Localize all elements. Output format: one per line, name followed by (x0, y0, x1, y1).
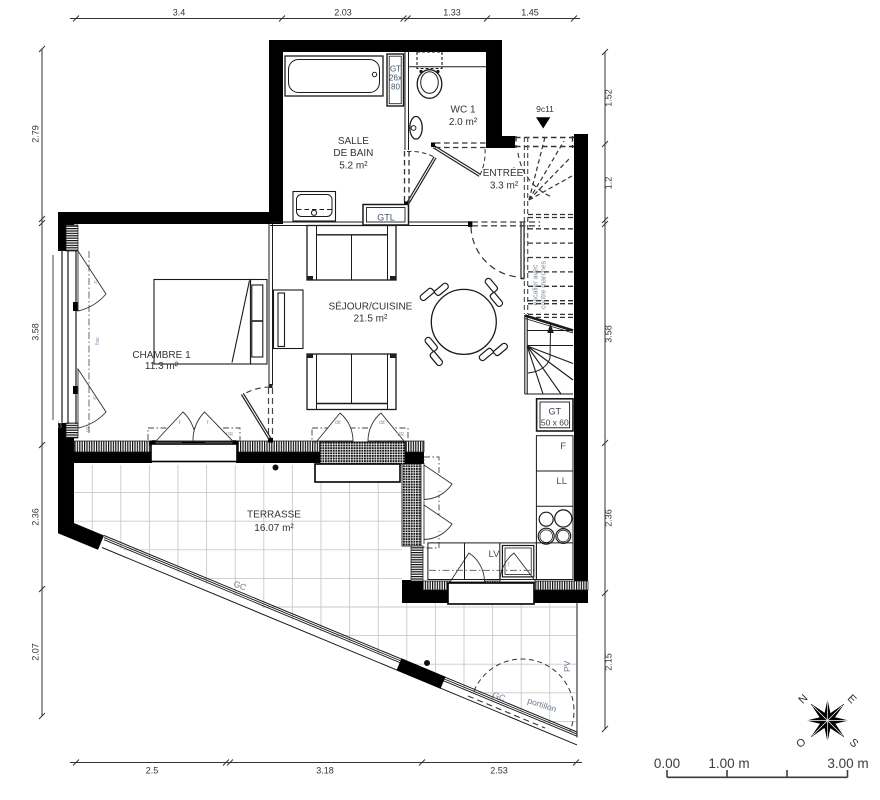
svg-text:2.07: 2.07 (31, 643, 41, 661)
svg-text:3.3 m²: 3.3 m² (490, 181, 519, 192)
svg-text:26x: 26x (389, 74, 402, 83)
svg-text:50 x 60: 50 x 60 (541, 418, 569, 428)
svg-text:3.00 m: 3.00 m (827, 756, 868, 771)
svg-text:ENTRÉE: ENTRÉE (483, 166, 524, 179)
svg-text:5.2 m²: 5.2 m² (339, 161, 368, 172)
svg-text:2.36: 2.36 (31, 508, 41, 526)
svg-text:VR: VR (397, 432, 404, 438)
svg-text:VR: VR (226, 432, 233, 438)
svg-text:dd: dd (379, 420, 385, 426)
svg-text:TERRASSE: TERRASSE (247, 510, 301, 521)
svg-text:WC 1: WC 1 (451, 105, 476, 116)
svg-text:1.45: 1.45 (521, 8, 539, 18)
svg-text:1.52: 1.52 (604, 89, 614, 107)
svg-text:LL: LL (556, 476, 567, 487)
svg-text:1.33: 1.33 (443, 8, 461, 18)
svg-text:2.0 m²: 2.0 m² (449, 117, 478, 128)
svg-text:3.4: 3.4 (173, 8, 186, 18)
svg-text:21.5 m²: 21.5 m² (353, 314, 388, 325)
svg-text:GC: GC (58, 420, 64, 428)
svg-text:SÉJOUR/CUISINE: SÉJOUR/CUISINE (328, 299, 412, 312)
svg-text:2.5: 2.5 (146, 766, 159, 776)
svg-text:dd: dd (335, 420, 341, 426)
svg-text:0.00: 0.00 (654, 756, 680, 771)
svg-text:2.15: 2.15 (604, 653, 614, 671)
svg-text:CHAMBRE 1: CHAMBRE 1 (132, 350, 191, 361)
svg-text:F: F (560, 441, 566, 452)
svg-text:2.53: 2.53 (490, 766, 508, 776)
svg-text:1.00 m: 1.00 m (708, 756, 749, 771)
svg-text:2.36: 2.36 (604, 509, 614, 527)
svg-text:2.03: 2.03 (334, 8, 352, 18)
svg-text:DE BAIN: DE BAIN (333, 148, 373, 159)
svg-text:LV: LV (489, 549, 501, 560)
svg-text:11.3 m²: 11.3 m² (145, 361, 179, 372)
svg-text:GT: GT (549, 407, 562, 417)
svg-text:VR: VR (86, 425, 92, 432)
svg-text:PV: PV (562, 660, 572, 672)
svg-text:80: 80 (391, 83, 400, 92)
svg-text:3.18: 3.18 (316, 766, 334, 776)
svg-text:GTL: GTL (377, 213, 395, 223)
svg-text:contre marches: contre marches (541, 260, 548, 309)
svg-text:escalier avec: escalier avec (533, 264, 540, 305)
svg-text:2.79: 2.79 (31, 125, 41, 143)
svg-text:1.2: 1.2 (604, 177, 614, 190)
svg-text:9c11: 9c11 (536, 104, 554, 114)
svg-text:GT: GT (390, 65, 401, 74)
svg-text:3.58: 3.58 (31, 323, 41, 341)
svg-text:3.58: 3.58 (604, 325, 614, 343)
svg-text:fixe: fixe (95, 337, 101, 345)
svg-text:SALLE: SALLE (338, 136, 369, 147)
svg-text:16.07 m²: 16.07 m² (254, 523, 294, 534)
